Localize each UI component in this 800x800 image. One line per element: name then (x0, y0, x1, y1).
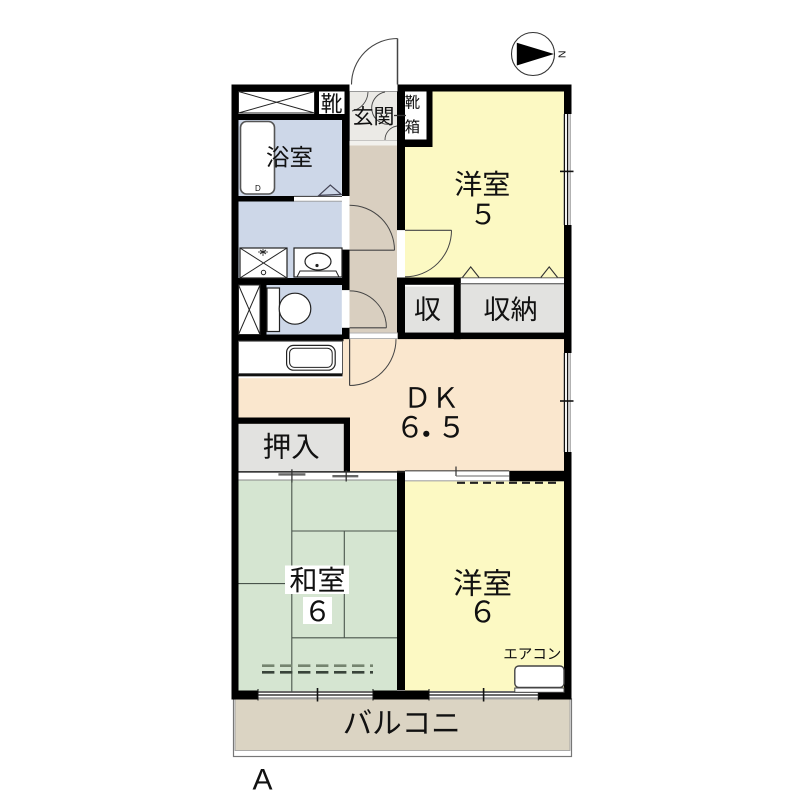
svg-text:N: N (556, 51, 568, 59)
svg-text:D: D (255, 184, 261, 193)
svg-text:A: A (253, 764, 273, 797)
